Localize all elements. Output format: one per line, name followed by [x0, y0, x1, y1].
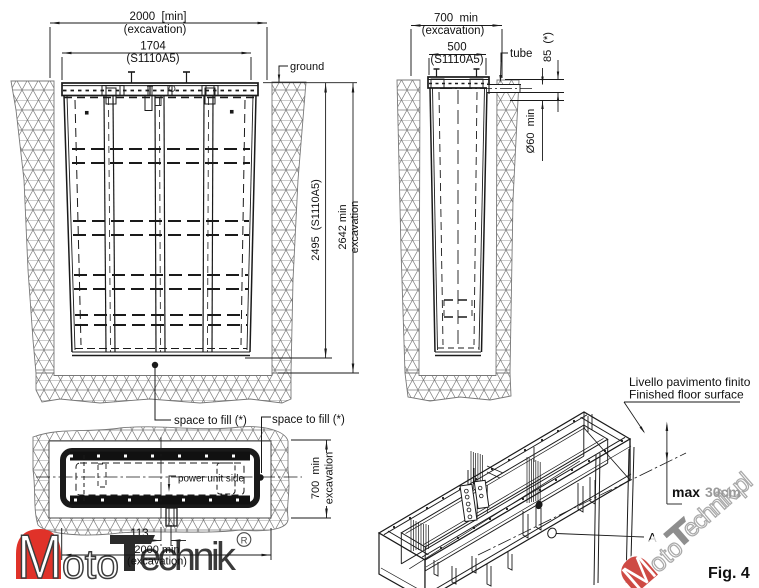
- svg-text:Ø60 min: Ø60 min: [525, 109, 537, 154]
- svg-text:tube: tube: [510, 48, 532, 60]
- svg-text:2495 (S1110A5): 2495 (S1110A5): [310, 179, 322, 261]
- svg-text:space to fill (*): space to fill (*): [174, 415, 247, 427]
- svg-text:ground: ground: [290, 61, 324, 73]
- svg-text:oto: oto: [62, 541, 119, 587]
- svg-text:(excavation): (excavation): [422, 25, 485, 37]
- svg-text:(S1110A5): (S1110A5): [126, 53, 179, 65]
- svg-text:excavation: excavation: [349, 201, 361, 254]
- svg-text:excavation: excavation: [324, 452, 336, 505]
- svg-text:2642 min: 2642 min: [337, 204, 349, 249]
- svg-text:R: R: [241, 536, 248, 547]
- svg-text:700 min: 700 min: [310, 457, 322, 499]
- svg-text:2000 [min]: 2000 [min]: [130, 11, 187, 23]
- svg-text:700 min: 700 min: [434, 13, 478, 25]
- svg-text:1704: 1704: [140, 41, 166, 53]
- svg-text:space to fill (*): space to fill (*): [272, 414, 345, 426]
- svg-text:Fig. 4: Fig. 4: [708, 565, 750, 582]
- svg-text:max: max: [672, 484, 700, 500]
- svg-text:2000 min: 2000 min: [134, 544, 179, 556]
- svg-text:(excavation): (excavation): [127, 556, 187, 568]
- svg-text:(excavation): (excavation): [124, 24, 187, 36]
- svg-text:power unit side: power unit side: [178, 474, 244, 485]
- svg-text:85 (*): 85 (*): [542, 32, 554, 62]
- svg-text:(S1110A5): (S1110A5): [430, 54, 483, 66]
- svg-text:500: 500: [447, 42, 466, 54]
- svg-text:Finished floor surface: Finished floor surface: [629, 388, 744, 402]
- svg-text:30cm: 30cm: [705, 484, 741, 500]
- svg-text:M: M: [17, 523, 62, 588]
